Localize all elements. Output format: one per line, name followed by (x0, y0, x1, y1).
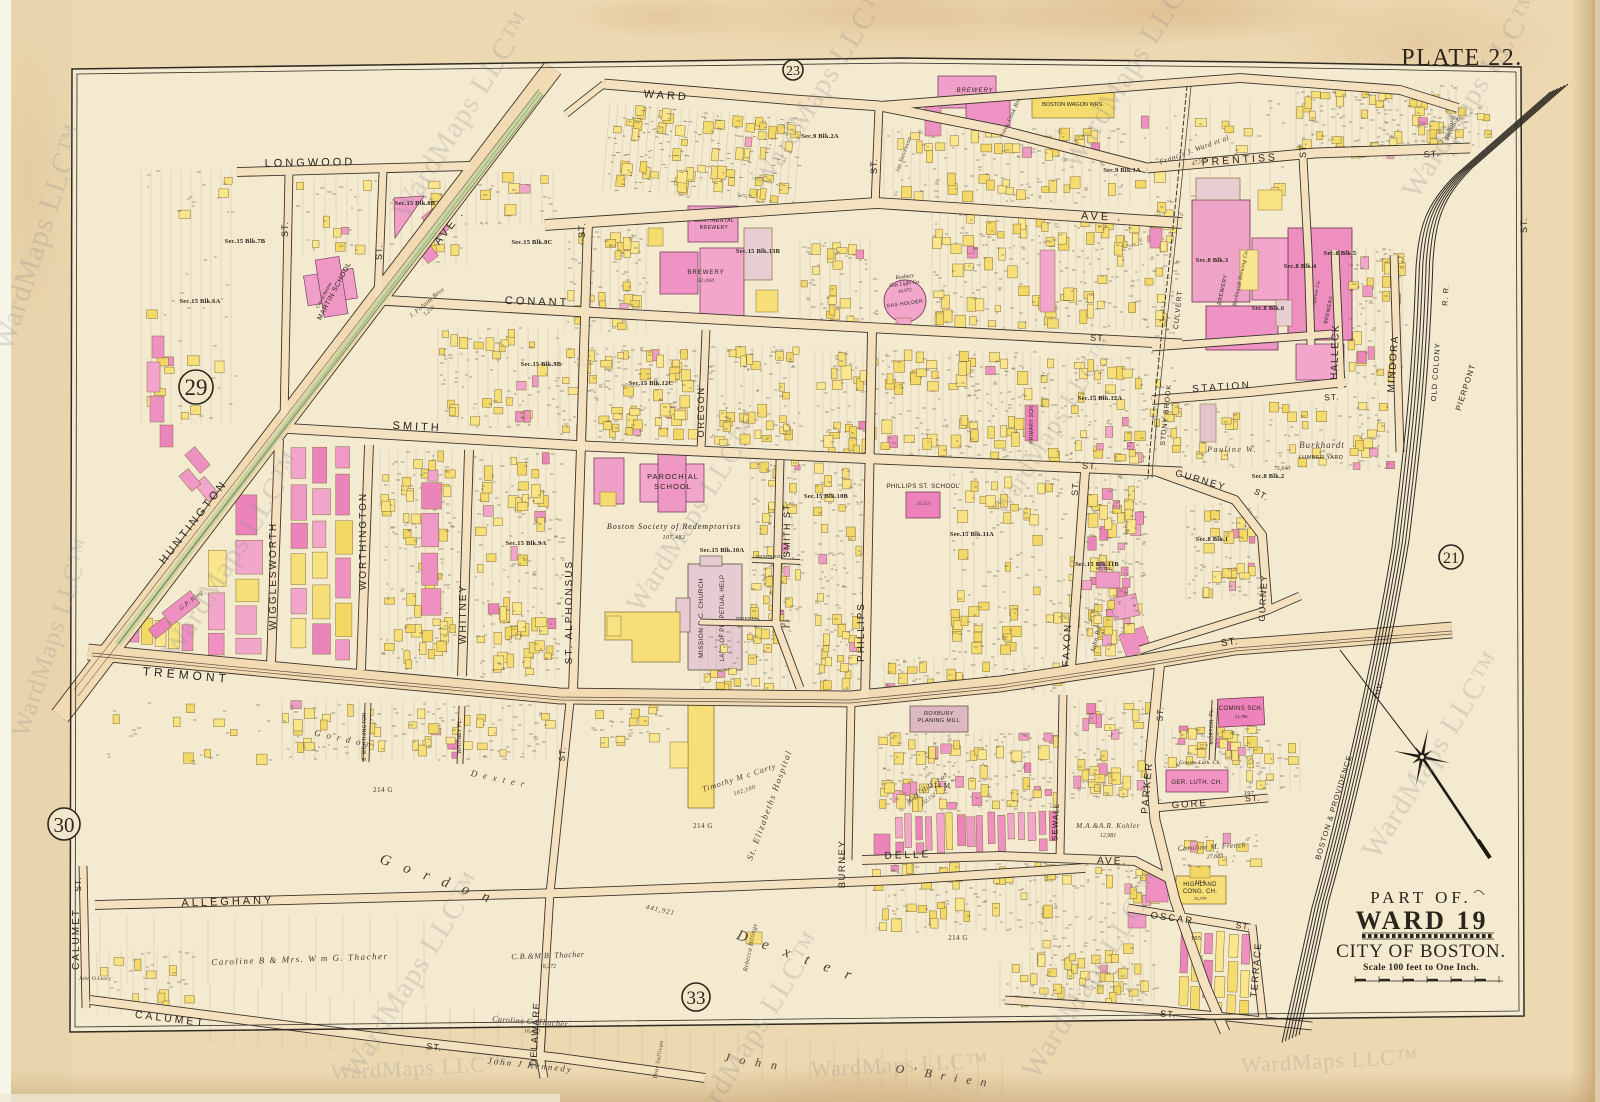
svg-text:WHITNEY: WHITNEY (458, 584, 469, 644)
svg-text:PL.: PL. (780, 622, 787, 627)
svg-text:COMINS SCH.: COMINS SCH. (1219, 706, 1263, 712)
svg-text:ST.: ST. (73, 876, 83, 891)
svg-text:ST.: ST. (280, 221, 290, 237)
svg-text:BURNEY: BURNEY (837, 840, 848, 889)
svg-text:ST.: ST. (1082, 461, 1099, 472)
svg-text:AVE .: AVE . (1081, 210, 1124, 223)
svg-text:PART OF.: PART OF. (1370, 888, 1471, 907)
svg-text:SEWALL: SEWALL (1050, 803, 1060, 841)
svg-text:LONGWOOD: LONGWOOD (265, 156, 356, 170)
svg-text:16,452: 16,452 (524, 1027, 541, 1035)
svg-text:18,272: 18,272 (540, 964, 557, 971)
svg-text:FAXON: FAXON (1061, 623, 1074, 667)
svg-text:BREWERY: BREWERY (687, 270, 724, 276)
svg-text:Sec.8 Blk.4: Sec.8 Blk.4 (1284, 263, 1317, 270)
svg-text:ST.: ST. (1298, 142, 1308, 158)
svg-text:GER. LUTH. CH.: GER. LUTH. CH. (1171, 780, 1222, 786)
svg-text:MISSION R.C. CHURCH: MISSION R.C. CHURCH (698, 578, 705, 658)
svg-text:Sec.15 Blk.8C: Sec.15 Blk.8C (511, 239, 552, 246)
svg-text:ST.: ST. (1519, 217, 1529, 233)
svg-text:ROXBURY: ROXBURY (924, 711, 954, 717)
svg-text:Sec.15 Blk.11A: Sec.15 Blk.11A (950, 531, 994, 538)
svg-text:DELLE: DELLE (884, 849, 931, 862)
svg-text:ST.: ST. (426, 1041, 443, 1053)
svg-text:WARD 19: WARD 19 (1356, 906, 1489, 935)
svg-text:214 G: 214 G (693, 822, 713, 830)
svg-text:WIGGLESWORTH: WIGGLESWORTH (268, 522, 279, 630)
svg-text:John O Leary: John O Leary (79, 976, 112, 982)
svg-text:195: 195 (1191, 935, 1202, 942)
svg-text:CITY OF BOSTON.: CITY OF BOSTON. (1336, 941, 1506, 962)
svg-text:Pauline W.: Pauline W. (1206, 445, 1257, 454)
svg-text:WORTHINGTON: WORTHINGTON (358, 492, 369, 590)
svg-text:ST.: ST. (577, 222, 587, 238)
svg-text:21: 21 (1443, 550, 1459, 567)
svg-text:ST.: ST. (1324, 391, 1340, 402)
svg-text:CONG. CH.: CONG. CH. (1183, 889, 1217, 895)
svg-text:PL.: PL. (1209, 707, 1215, 716)
svg-text:Sec.15 Blk.7B: Sec.15 Blk.7B (225, 238, 266, 245)
svg-text:30: 30 (54, 813, 75, 837)
svg-text:Sec.8 Blk.6: Sec.8 Blk.6 (1252, 305, 1285, 312)
svg-text:CALUMET: CALUMET (71, 908, 82, 970)
svg-text:SCHOOL: SCHOOL (654, 482, 692, 491)
svg-text:Sec.15 Blk.12C: Sec.15 Blk.12C (629, 380, 674, 387)
svg-text:LUMBER YARD: LUMBER YARD (1299, 455, 1344, 461)
svg-text:Sec.15 Blk.10A: Sec.15 Blk.10A (700, 547, 745, 554)
svg-text:Sec.15 Blk.9A: Sec.15 Blk.9A (505, 540, 546, 547)
svg-text:ST.: ST. (1160, 1008, 1177, 1019)
svg-text:194: 194 (1195, 879, 1206, 886)
svg-text:PLANING MILL: PLANING MILL (918, 718, 961, 724)
svg-text:Sec.9 Blk.1A: Sec.9 Blk.1A (1103, 167, 1141, 174)
svg-text:214 M: 214 M (930, 782, 951, 790)
svg-text:Burkhardt: Burkhardt (1299, 440, 1345, 450)
svg-text:WHITNEY PL.: WHITNEY PL. (457, 718, 463, 753)
svg-text:PAROCHIAL: PAROCHIAL (647, 472, 699, 481)
svg-text:ST.: ST. (869, 158, 879, 174)
svg-text:NICHOLSON: NICHOLSON (756, 554, 784, 559)
svg-text:M.A.&A.R. Kohler: M.A.&A.R. Kohler (1075, 821, 1140, 830)
svg-text:Sec.15 Blk.11B: Sec.15 Blk.11B (1075, 561, 1119, 568)
svg-text:27,683: 27,683 (1207, 854, 1224, 861)
svg-text:MORTON: MORTON (1209, 719, 1215, 744)
svg-text:Sec.8 Blk.3: Sec.8 Blk.3 (1196, 257, 1229, 264)
svg-text:HALLECK: HALLECK (1329, 324, 1342, 380)
svg-text:214 G: 214 G (373, 786, 393, 794)
svg-text:Sec.8 Blk.2: Sec.8 Blk.2 (1252, 473, 1285, 480)
svg-text:BREWERY: BREWERY (700, 225, 729, 231)
svg-text:Sec.15 Blk.6A: Sec.15 Blk.6A (179, 298, 220, 305)
svg-text:Scale 100 feet to One Inch.: Scale 100 feet to One Inch. (1363, 963, 1479, 973)
svg-text:197: 197 (1244, 790, 1255, 797)
svg-text:ST.: ST. (1235, 920, 1252, 932)
svg-text:PHILLIPS ST. SCHOOL: PHILLIPS ST. SCHOOL (886, 483, 959, 490)
svg-text:SMITH ST.: SMITH ST. (782, 500, 792, 557)
svg-text:Sec.8 Blk.1: Sec.8 Blk.1 (1196, 536, 1229, 543)
svg-text:32,060: 32,060 (698, 279, 715, 284)
svg-text:20,553: 20,553 (916, 502, 930, 507)
svg-text:75,640: 75,640 (1274, 465, 1291, 472)
svg-text:ST.: ST. (1070, 480, 1081, 497)
svg-text:R. R.: R. R. (1440, 283, 1451, 306)
svg-text:ORIENTAL: ORIENTAL (736, 616, 761, 621)
svg-text:Sec.15 Blk.10B: Sec.15 Blk.10B (804, 493, 849, 500)
svg-text:Sec.15 Blk.13B: Sec.15 Blk.13B (736, 248, 781, 255)
svg-text:ST.: ST. (374, 244, 384, 260)
svg-text:Sec.15 Blk.9B: Sec.15 Blk.9B (521, 361, 562, 368)
svg-text:PHILLIPS: PHILLIPS (856, 602, 867, 662)
svg-text:ST.: ST. (557, 746, 568, 762)
svg-text:12,981: 12,981 (1100, 833, 1117, 839)
svg-text:33: 33 (687, 988, 706, 1009)
svg-text:OREGON: OREGON (696, 386, 707, 437)
svg-text:214 G: 214 G (948, 934, 968, 942)
svg-text:AVE.: AVE. (1097, 855, 1127, 867)
svg-text:ST.: ST. (1154, 706, 1165, 722)
svg-text:Sec.8 Blk.5: Sec.8 Blk.5 (1324, 250, 1357, 257)
svg-text:ST. ALPHONSUS: ST. ALPHONSUS (564, 560, 575, 664)
svg-text:23: 23 (786, 64, 800, 79)
svg-text:29: 29 (185, 375, 208, 400)
svg-text:Gowen. Luth. Ch.: Gowen. Luth. Ch. (1179, 760, 1221, 766)
svg-text:CONANT: CONANT (505, 295, 570, 309)
